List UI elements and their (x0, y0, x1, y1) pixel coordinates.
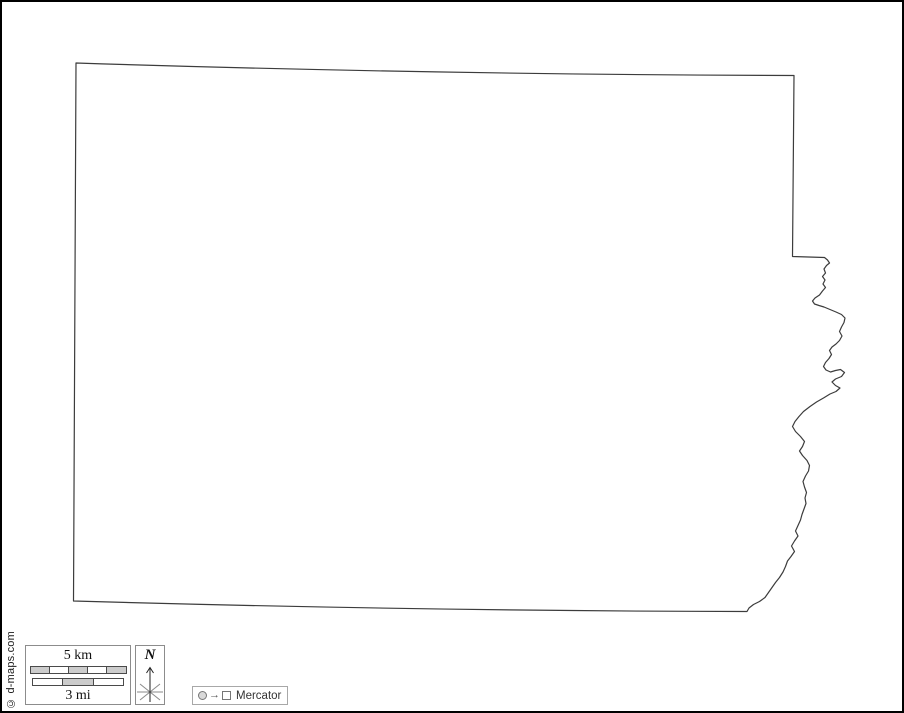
copyright-credit: © d-maps.com (5, 637, 17, 709)
county-outline-map (2, 2, 904, 713)
county-boundary-path (74, 63, 846, 612)
scale-mi-bar (32, 678, 124, 686)
scale-mi-label: 3 mi (26, 688, 130, 703)
scale-km-label: 5 km (26, 648, 130, 663)
map-canvas: © d-maps.com 5 km 3 mi N → Mercator (0, 0, 904, 713)
scale-km-bar (30, 666, 127, 674)
north-indicator-box: N (135, 645, 165, 705)
north-label: N (136, 647, 164, 664)
projection-legend-box: → Mercator (192, 686, 288, 705)
projected-square-icon (222, 691, 231, 700)
scale-bar-box: 5 km 3 mi (25, 645, 131, 705)
sphere-icon (198, 691, 207, 700)
projection-name: Mercator (236, 690, 281, 702)
arrow-right-icon: → (209, 690, 220, 701)
north-compass-icon (136, 664, 164, 704)
